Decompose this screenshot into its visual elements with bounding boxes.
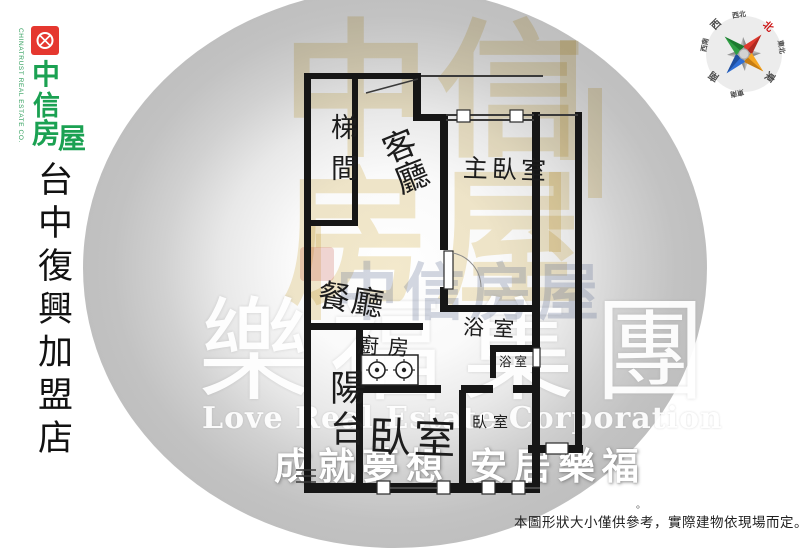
room-label-kitchen: 廚房 [357, 329, 419, 363]
room-label-bedroom-small: 臥室 [472, 411, 514, 432]
logo-subtext: CHINATRUST REAL ESTATE CO. [17, 28, 24, 168]
room-label-balcony: 陽台 [318, 369, 370, 451]
compass-rose-icon: 西北 北 東北 東 東南 南 西南 西 [698, 8, 790, 100]
disclaimer-text: 本圖形狀大小僅供參考，實際建物依現場而定。 [514, 511, 800, 531]
store-name: 台中復興加盟店 [27, 161, 78, 462]
knot-emblem-icon [31, 26, 59, 55]
compass-label-nw: 西北 [731, 9, 746, 21]
stair-diagonal-line [366, 79, 418, 93]
door-swing-arc [453, 253, 481, 287]
room-label-bathroom-small: 浴室 [499, 351, 530, 370]
logo-square [31, 26, 59, 55]
room-label-master-bedroom: 主臥室 [462, 148, 550, 187]
logo-char-3: 房 [32, 112, 60, 152]
door-leaf-master [444, 251, 453, 289]
room-label-bathroom-main: 浴室 [462, 311, 523, 344]
door-leaf-bath [533, 348, 540, 367]
floorplan-drawing [0, 0, 800, 553]
stray-mark: 。 [636, 496, 646, 511]
room-label-stairwell: 梯間 [322, 113, 361, 195]
room-label-bedroom-large: 臥室 [368, 403, 460, 467]
logo-char-4: 屋 [58, 117, 86, 157]
floorplan-sheet: 中信房屋 樂福集團 Love Real Estate Corporation 成… [0, 0, 800, 553]
